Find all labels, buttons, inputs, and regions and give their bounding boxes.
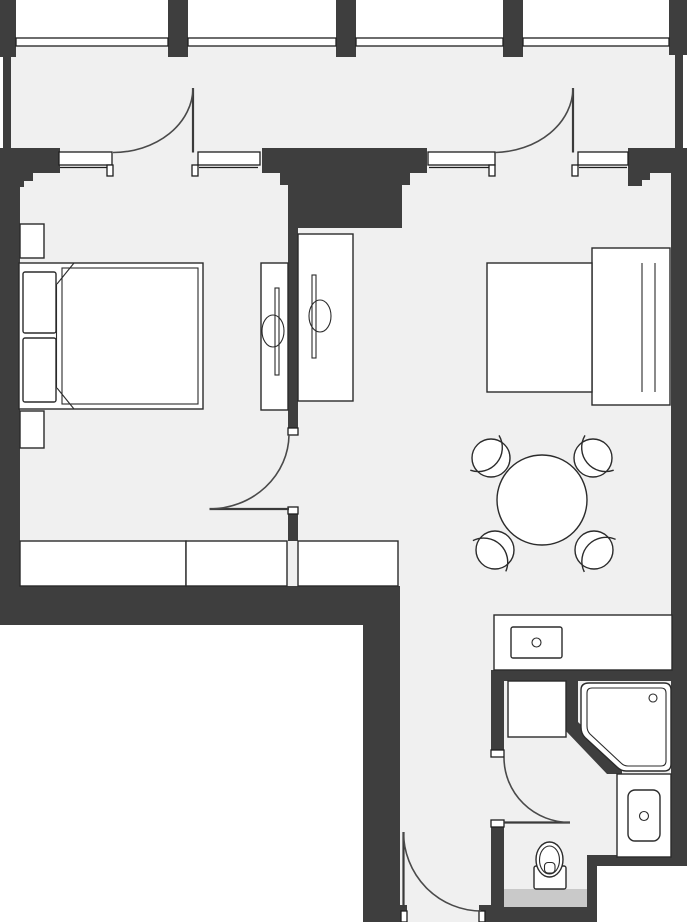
bathroom-door-jamb-2 (491, 820, 504, 827)
pillar-3 (336, 0, 356, 57)
bathroom-door-opening (491, 757, 504, 820)
window-3 (428, 152, 495, 165)
single-bed-frame (592, 248, 670, 405)
kitchen-sink (511, 627, 562, 658)
pillar-1 (0, 0, 16, 57)
balcony-glazing-4 (523, 38, 669, 46)
outside-left-sliver (0, 46, 3, 150)
entrance-door-opening (407, 905, 479, 922)
wardrobe-section-3 (298, 541, 398, 586)
window-4 (578, 152, 628, 165)
washbasin (628, 790, 660, 841)
balcony-door-right-jamb-1 (489, 165, 495, 176)
entrance-door-jamb-1 (401, 911, 407, 922)
wall-left (0, 148, 20, 625)
wall-top-right (628, 148, 672, 173)
tv-unit-right (298, 234, 353, 401)
wall-top-mid (262, 148, 427, 173)
balcony-door-left-jamb-2 (192, 165, 198, 176)
window-1 (59, 152, 112, 165)
floor-plan (0, 0, 687, 922)
wall-hall-west (363, 623, 400, 922)
pillar-4 (503, 0, 523, 57)
nightstand-bottom (20, 411, 44, 448)
balcony-glazing-3 (356, 38, 503, 46)
balcony-floor (3, 46, 683, 150)
window-2 (198, 152, 260, 165)
wall-bedroom-bottom (0, 586, 400, 625)
bedroom-door-opening (288, 435, 298, 507)
balcony-rail-left (3, 55, 11, 150)
pillar-2 (168, 0, 188, 57)
pillar-5 (669, 0, 687, 55)
outside-bottom-right (597, 866, 687, 922)
washing-machine (508, 681, 566, 737)
wall-mid-step-2 (288, 185, 402, 228)
wall-right (671, 148, 687, 866)
entrance-door-jamb-2 (479, 911, 485, 922)
balcony-glazing-1 (16, 38, 168, 46)
dining-table (497, 455, 587, 545)
single-bed-mattress (487, 263, 592, 392)
bedroom-door-jamb-2 (288, 507, 298, 514)
wardrobe-section-1 (20, 541, 186, 586)
bedroom-door-jamb-1 (288, 428, 298, 435)
pillow-1 (23, 272, 56, 333)
balcony-door-left-jamb-1 (107, 165, 113, 176)
bath-mat (504, 889, 587, 907)
outside-bottom-left (0, 625, 363, 922)
balcony-glazing-2 (188, 38, 336, 46)
wall-mid-step-1 (280, 173, 410, 185)
balcony-door-right-jamb-2 (572, 165, 578, 176)
pillow-2 (23, 338, 56, 402)
wardrobe-section-2 (186, 541, 287, 586)
nightstand-top (20, 224, 44, 258)
wall-step-right-1 (628, 173, 650, 180)
bath-mat-layer (504, 889, 587, 907)
balcony-rail-right (675, 55, 683, 148)
wall-bath-corner (587, 855, 597, 922)
wall-step-right-2 (628, 180, 642, 186)
wall-bath-top (491, 670, 672, 681)
bathroom-door-jamb-1 (491, 750, 504, 757)
